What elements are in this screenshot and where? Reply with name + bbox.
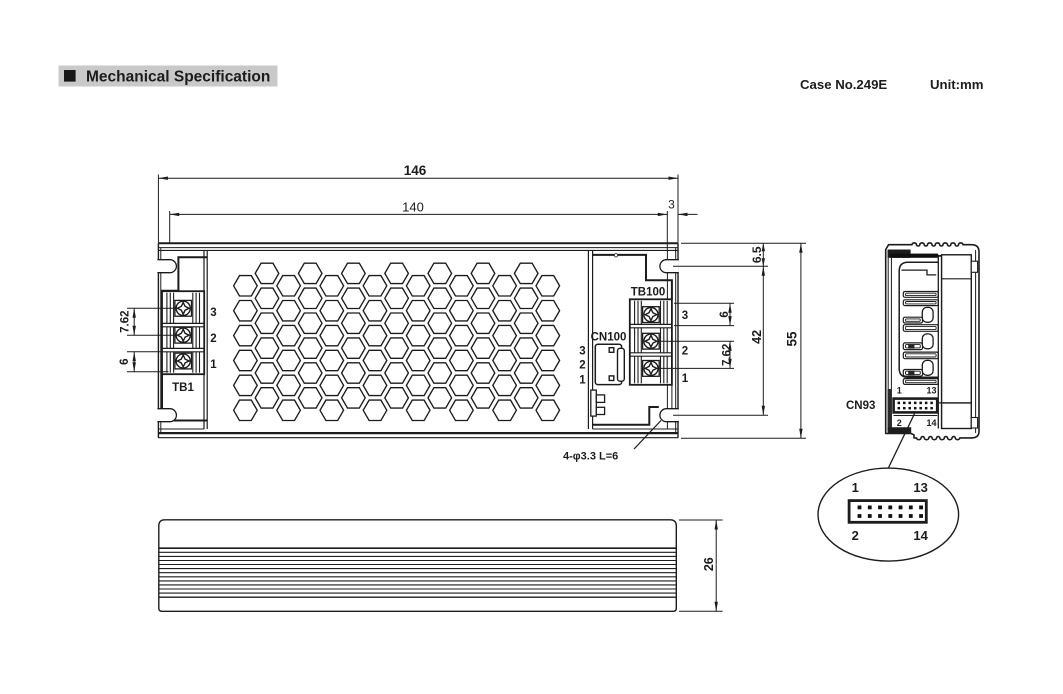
svg-text:2: 2 [852,528,859,543]
svg-text:TB100: TB100 [631,287,666,299]
svg-text:13: 13 [913,480,927,495]
svg-text:1: 1 [210,359,217,371]
svg-text:13: 13 [926,386,936,396]
svg-text:1: 1 [852,480,859,495]
svg-text:3: 3 [210,307,216,319]
svg-text:6: 6 [719,311,731,317]
svg-text:42: 42 [750,330,764,344]
svg-text:1: 1 [682,373,689,385]
svg-text:CN100: CN100 [591,332,627,344]
svg-text:1: 1 [579,375,586,387]
svg-text:6.5: 6.5 [750,246,764,263]
svg-text:1: 1 [897,386,902,396]
svg-text:2: 2 [682,346,688,358]
svg-text:6: 6 [119,358,131,364]
svg-text:55: 55 [785,331,800,347]
svg-text:Unit:mm: Unit:mm [930,77,983,92]
svg-text:3: 3 [668,198,675,212]
svg-text:7.62: 7.62 [119,311,131,333]
svg-text:7.62: 7.62 [721,344,733,366]
svg-text:TB1: TB1 [172,382,194,394]
svg-text:140: 140 [402,200,424,215]
svg-text:14: 14 [913,528,928,543]
svg-text:3: 3 [579,345,585,357]
svg-text:2: 2 [897,418,902,428]
svg-text:3: 3 [682,310,688,322]
svg-text:CN93: CN93 [846,400,875,412]
svg-text:2: 2 [210,333,216,345]
svg-text:26: 26 [702,557,716,571]
svg-text:146: 146 [404,163,427,178]
svg-text:Case No.249E: Case No.249E [800,77,887,92]
svg-text:2: 2 [579,360,585,372]
svg-text:4-φ3.3 L=6: 4-φ3.3 L=6 [563,451,618,463]
svg-text:14: 14 [926,418,936,428]
svg-text:Mechanical Specification: Mechanical Specification [86,69,270,86]
